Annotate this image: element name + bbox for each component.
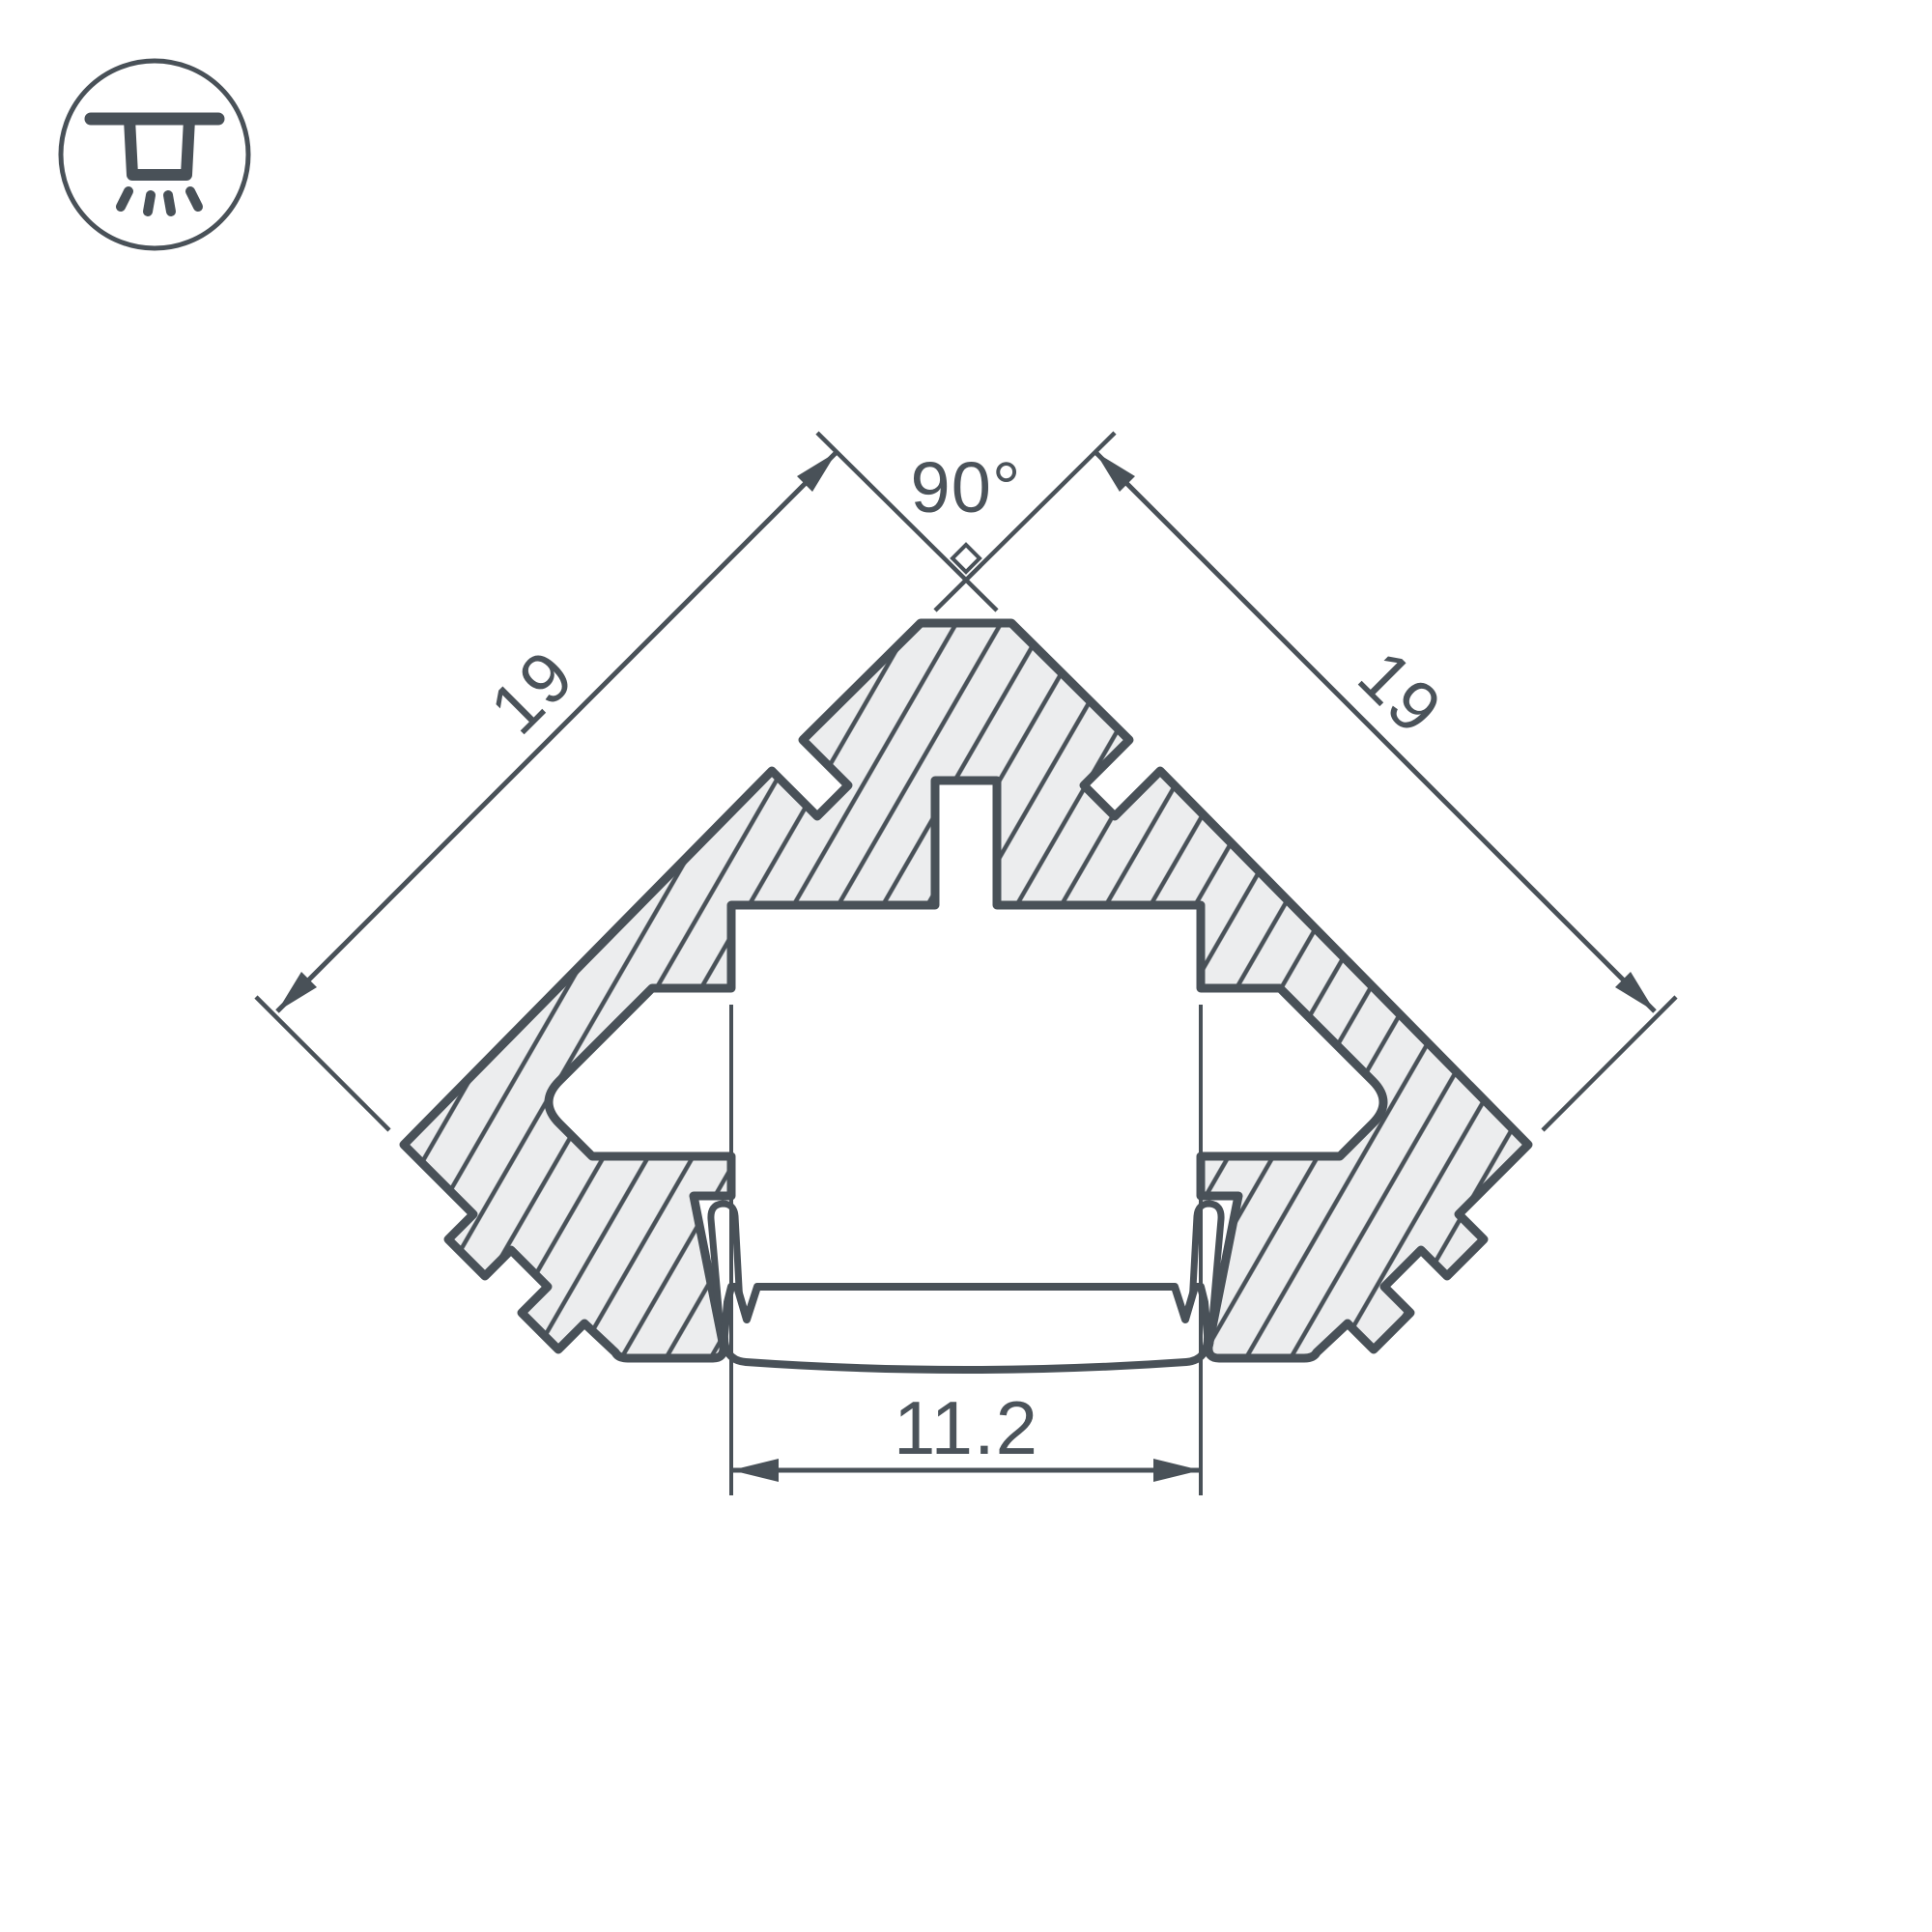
dim-label-side-left: 19 xyxy=(474,635,588,749)
arrowhead xyxy=(1153,1459,1201,1482)
drawing-canvas: 19 19 90° 11.2 xyxy=(0,0,1932,1932)
icon-light-rays xyxy=(121,191,198,212)
icon-fixture-box xyxy=(129,119,189,175)
extension-line-right-bottom xyxy=(1543,997,1676,1130)
diffuser-cover xyxy=(724,1287,1207,1370)
profile-body xyxy=(404,623,1528,1358)
arrowhead xyxy=(731,1459,779,1482)
profile-technical-drawing: 19 19 90° 11.2 xyxy=(0,0,1932,1932)
profile-body-section xyxy=(404,623,1528,1358)
extension-line-left-bottom xyxy=(256,997,389,1130)
dim-label-width-bottom: 11.2 xyxy=(894,1385,1038,1470)
dimension-line-left xyxy=(277,452,837,1011)
dim-label-angle: 90° xyxy=(911,447,1022,527)
dimension-line-right xyxy=(1095,452,1655,1011)
icon-circle xyxy=(61,61,248,248)
recessed-ceiling-light-icon xyxy=(61,61,248,248)
dim-label-side-right: 19 xyxy=(1343,635,1457,749)
